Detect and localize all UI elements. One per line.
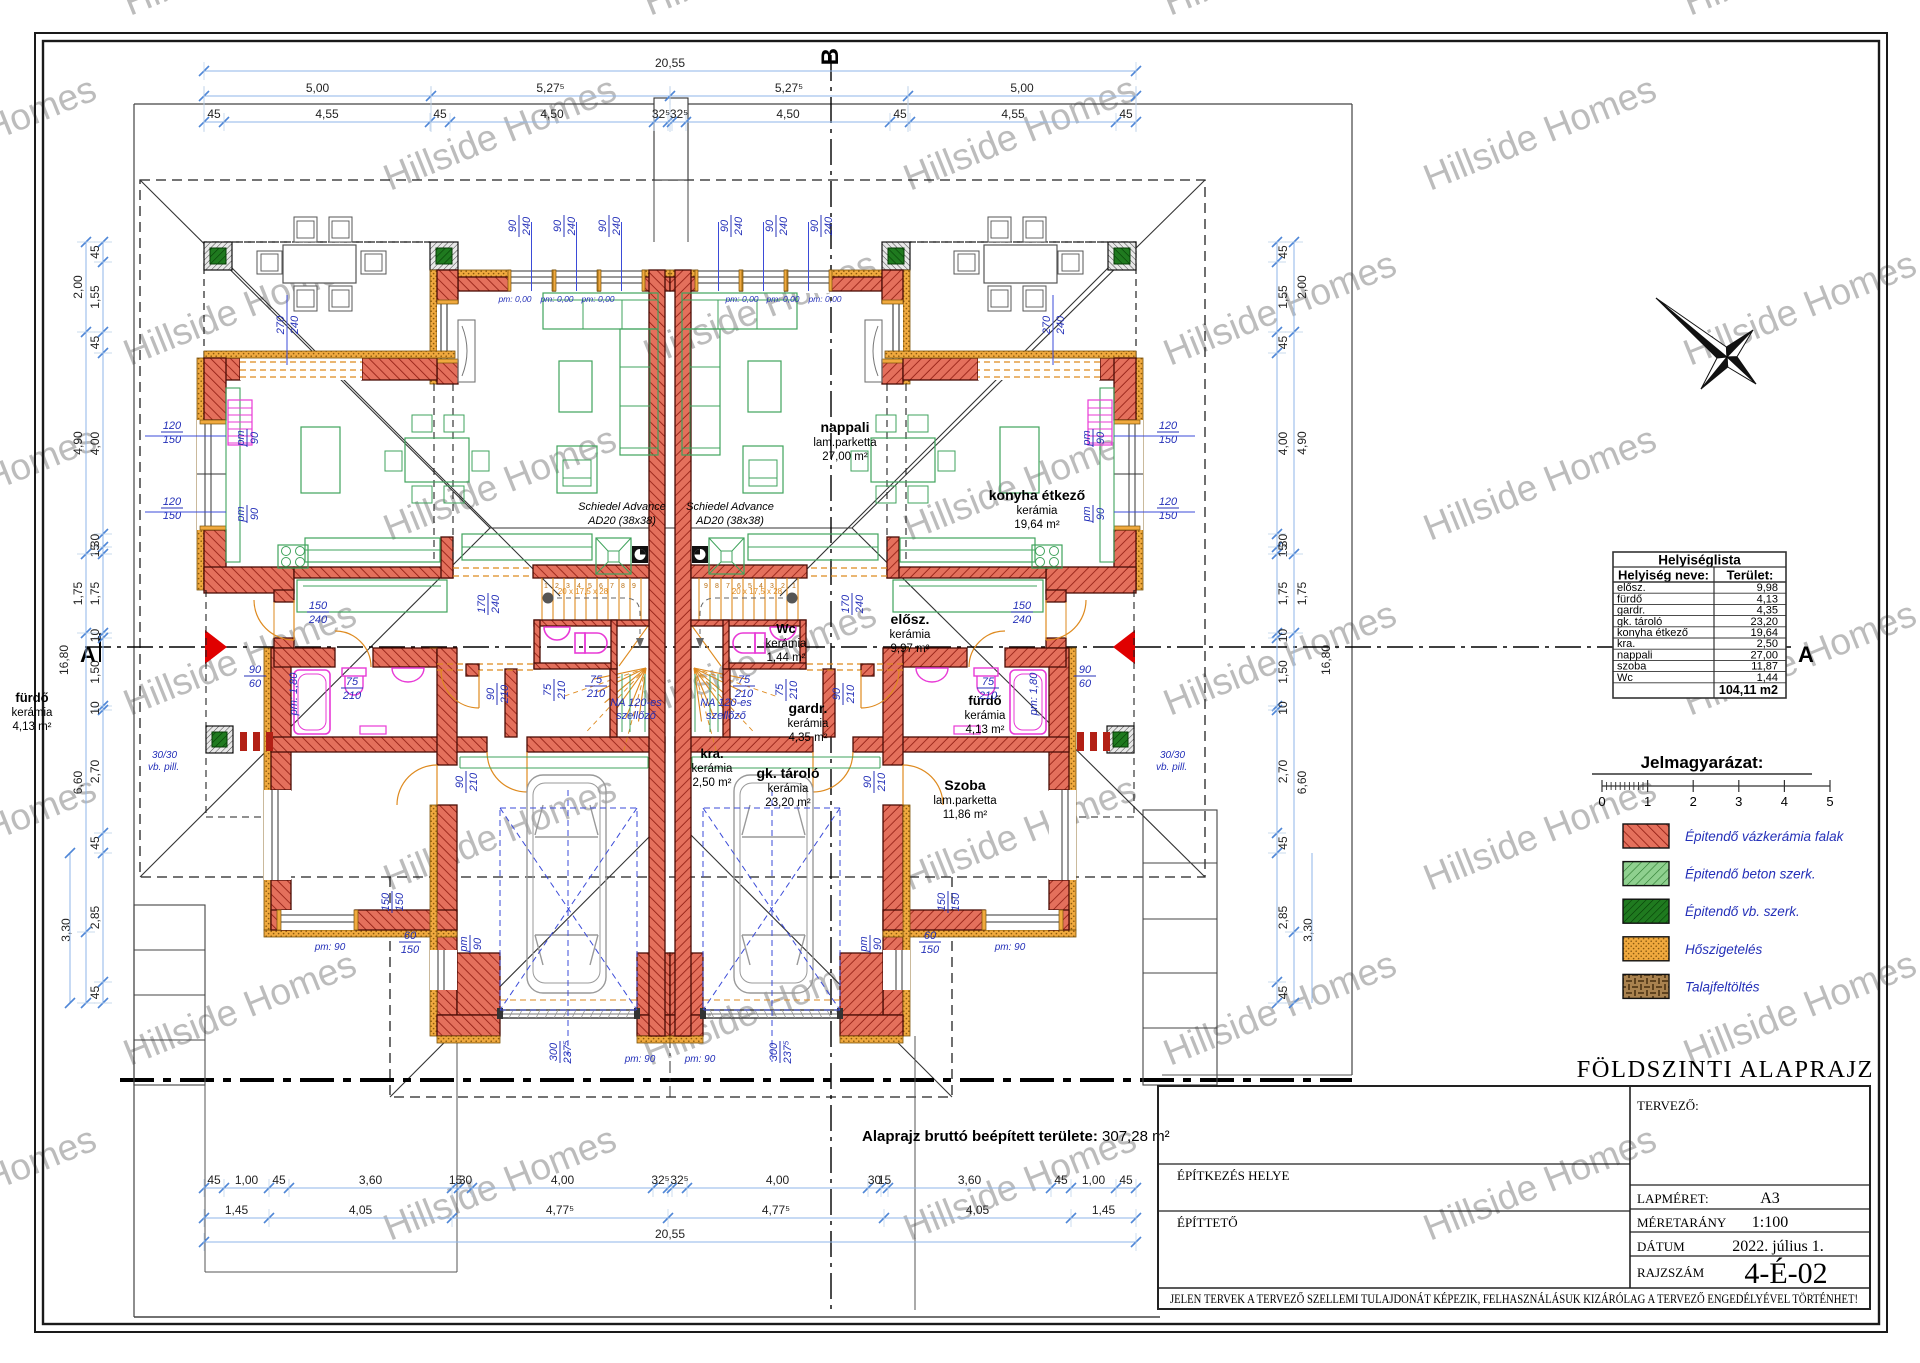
svg-text:9,98: 9,98 xyxy=(1757,582,1778,594)
svg-text:4,90: 4,90 xyxy=(71,431,85,455)
svg-text:20 x 17,5 x 28: 20 x 17,5 x 28 xyxy=(732,587,783,596)
svg-text:8: 8 xyxy=(621,583,625,590)
svg-text:237⁵: 237⁵ xyxy=(782,1040,794,1064)
svg-text:pm: 1,80: pm: 1,80 xyxy=(288,672,300,717)
svg-text:szoba: szoba xyxy=(1617,661,1647,673)
svg-text:pm: pm xyxy=(235,430,247,446)
svg-text:5,00: 5,00 xyxy=(1010,81,1034,95)
svg-text:Schiedel Advance: Schiedel Advance xyxy=(578,501,666,513)
svg-text:pm: pm xyxy=(858,936,870,952)
svg-text:1,55: 1,55 xyxy=(1276,285,1290,309)
svg-text:210: 210 xyxy=(876,772,888,792)
svg-text:5,00: 5,00 xyxy=(306,81,330,95)
svg-text:120: 120 xyxy=(1159,420,1178,432)
svg-text:75: 75 xyxy=(982,676,995,688)
svg-text:11,87: 11,87 xyxy=(1751,661,1778,673)
svg-text:RAJZSZÁM: RAJZSZÁM xyxy=(1637,1265,1705,1280)
svg-text:4,00: 4,00 xyxy=(766,1173,790,1187)
svg-text:1,75: 1,75 xyxy=(88,581,102,605)
svg-text:Helyiség neve:: Helyiség neve: xyxy=(1618,568,1709,583)
svg-text:32⁵: 32⁵ xyxy=(652,107,670,121)
svg-text:270: 270 xyxy=(1041,315,1053,335)
svg-text:240: 240 xyxy=(289,315,301,335)
svg-text:104,11 m2: 104,11 m2 xyxy=(1719,683,1778,697)
svg-text:90: 90 xyxy=(862,775,874,788)
svg-text:210: 210 xyxy=(556,680,568,700)
svg-text:1: 1 xyxy=(1644,794,1651,809)
svg-text:1,55: 1,55 xyxy=(88,285,102,309)
svg-text:210: 210 xyxy=(342,690,362,702)
svg-text:16,80: 16,80 xyxy=(1319,645,1333,675)
svg-text:170: 170 xyxy=(840,594,852,613)
svg-text:150: 150 xyxy=(1013,600,1032,612)
svg-text:vb. pill.: vb. pill. xyxy=(148,762,179,773)
svg-text:4: 4 xyxy=(1781,794,1788,809)
svg-text:1:100: 1:100 xyxy=(1752,1214,1788,1231)
svg-text:kerámia: kerámia xyxy=(768,783,810,795)
svg-text:kerámia: kerámia xyxy=(788,718,830,730)
svg-text:240: 240 xyxy=(778,216,790,236)
svg-text:DÁTUM: DÁTUM xyxy=(1637,1239,1685,1254)
svg-text:szellőző: szellőző xyxy=(706,710,747,722)
svg-text:75: 75 xyxy=(738,674,751,686)
svg-text:2,70: 2,70 xyxy=(1276,759,1290,783)
svg-text:Szoba: Szoba xyxy=(944,777,985,793)
svg-text:170: 170 xyxy=(476,594,488,613)
svg-text:45: 45 xyxy=(88,836,102,850)
svg-text:4-É-02: 4-É-02 xyxy=(1744,1257,1827,1290)
svg-text:gk. tároló: gk. tároló xyxy=(756,765,819,781)
svg-text:270: 270 xyxy=(275,315,287,335)
svg-text:1: 1 xyxy=(792,583,796,590)
svg-text:ÉPÍTTETŐ: ÉPÍTTETŐ xyxy=(1177,1215,1238,1230)
svg-text:JELEN TERVEK A TERVEZŐ SZELLEM: JELEN TERVEK A TERVEZŐ SZELLEMI TULAJDON… xyxy=(1170,1292,1858,1306)
svg-text:6,60: 6,60 xyxy=(1295,770,1309,794)
svg-text:pm: 90: pm: 90 xyxy=(624,1054,656,1065)
svg-text:150: 150 xyxy=(394,892,406,911)
svg-text:32⁵: 32⁵ xyxy=(670,1173,688,1187)
svg-text:10: 10 xyxy=(88,701,102,715)
svg-text:kerámia: kerámia xyxy=(766,638,808,650)
svg-text:pm: 0,00: pm: 0,00 xyxy=(724,294,758,304)
svg-text:fürdő: fürdő xyxy=(1617,593,1642,605)
svg-text:pm: 90: pm: 90 xyxy=(994,942,1026,953)
svg-text:AD20 (38x38): AD20 (38x38) xyxy=(695,515,764,527)
svg-text:2: 2 xyxy=(1690,794,1697,809)
svg-text:4,35: 4,35 xyxy=(1757,605,1778,617)
svg-text:1,50: 1,50 xyxy=(88,660,102,684)
svg-text:45: 45 xyxy=(1276,986,1290,1000)
svg-text:4,50: 4,50 xyxy=(776,107,800,121)
svg-text:90: 90 xyxy=(764,219,776,232)
svg-text:pm: 0,00: pm: 0,00 xyxy=(580,294,614,304)
svg-text:kerámia: kerámia xyxy=(692,763,734,775)
svg-text:vb. pill.: vb. pill. xyxy=(1156,762,1187,773)
svg-text:75: 75 xyxy=(542,683,554,696)
svg-text:45: 45 xyxy=(207,1173,221,1187)
svg-text:3,30: 3,30 xyxy=(1301,918,1315,942)
svg-text:6,60: 6,60 xyxy=(71,770,85,794)
svg-text:240: 240 xyxy=(823,216,835,236)
svg-text:120: 120 xyxy=(1159,496,1178,508)
svg-text:ÉPÍTKEZÉS HELYE: ÉPÍTKEZÉS HELYE xyxy=(1177,1168,1289,1183)
svg-text:gardr.: gardr. xyxy=(1617,605,1645,617)
svg-text:konyha étkező: konyha étkező xyxy=(1617,627,1688,639)
svg-text:210: 210 xyxy=(788,680,800,700)
svg-text:MÉRETARÁNY: MÉRETARÁNY xyxy=(1637,1215,1727,1230)
svg-text:2,85: 2,85 xyxy=(88,905,102,929)
svg-text:Terület:: Terület: xyxy=(1727,568,1774,583)
svg-text:kerámia: kerámia xyxy=(1017,505,1059,517)
svg-text:kra.: kra. xyxy=(700,746,723,761)
svg-text:A: A xyxy=(1798,642,1814,667)
svg-text:19,64 m²: 19,64 m² xyxy=(1014,519,1060,531)
svg-text:4,77⁵: 4,77⁵ xyxy=(546,1203,574,1217)
svg-text:2022. július 1.: 2022. július 1. xyxy=(1732,1238,1824,1255)
svg-text:9: 9 xyxy=(704,583,708,590)
svg-text:150: 150 xyxy=(309,600,328,612)
svg-text:45: 45 xyxy=(1276,336,1290,350)
svg-text:1,75: 1,75 xyxy=(71,581,85,605)
svg-text:B: B xyxy=(817,48,844,65)
svg-text:10: 10 xyxy=(88,629,102,643)
svg-text:90: 90 xyxy=(1079,664,1092,676)
svg-text:4,00: 4,00 xyxy=(551,1173,575,1187)
svg-text:4,05: 4,05 xyxy=(349,1203,373,1217)
svg-text:Épitendő beton szerk.: Épitendő beton szerk. xyxy=(1685,867,1816,882)
svg-text:30/30: 30/30 xyxy=(152,750,177,761)
svg-text:45: 45 xyxy=(88,986,102,1000)
svg-text:90: 90 xyxy=(1095,431,1107,444)
svg-text:45: 45 xyxy=(1276,836,1290,850)
svg-text:9: 9 xyxy=(632,583,636,590)
svg-text:237⁵: 237⁵ xyxy=(562,1040,574,1064)
svg-text:90: 90 xyxy=(249,664,262,676)
svg-text:pm: 0,00: pm: 0,00 xyxy=(539,294,573,304)
svg-text:lam.parketta: lam.parketta xyxy=(933,795,997,807)
svg-text:1,45: 1,45 xyxy=(1092,1203,1116,1217)
svg-text:30/30: 30/30 xyxy=(1160,750,1185,761)
svg-text:90: 90 xyxy=(249,431,261,444)
svg-text:5,27⁵: 5,27⁵ xyxy=(536,81,564,95)
svg-text:1,44 m²: 1,44 m² xyxy=(767,652,806,664)
svg-text:75: 75 xyxy=(590,674,603,686)
svg-text:kerámia: kerámia xyxy=(965,710,1007,722)
svg-text:45: 45 xyxy=(1119,107,1133,121)
svg-text:NA 120-es: NA 120-es xyxy=(700,697,752,709)
svg-text:45: 45 xyxy=(207,107,221,121)
svg-text:4,77⁵: 4,77⁵ xyxy=(762,1203,790,1217)
svg-text:2,00: 2,00 xyxy=(1295,275,1309,299)
svg-text:210: 210 xyxy=(586,688,606,700)
svg-text:240: 240 xyxy=(308,614,328,626)
svg-text:150: 150 xyxy=(936,892,948,911)
svg-text:120: 120 xyxy=(163,420,182,432)
svg-text:4,05: 4,05 xyxy=(966,1203,990,1217)
svg-text:elősz.: elősz. xyxy=(1617,582,1646,594)
svg-text:90: 90 xyxy=(485,687,497,700)
svg-text:2,70: 2,70 xyxy=(88,759,102,783)
svg-text:90: 90 xyxy=(597,219,609,232)
svg-text:7: 7 xyxy=(610,583,614,590)
svg-text:TERVEZŐ:: TERVEZŐ: xyxy=(1637,1098,1699,1113)
svg-text:90: 90 xyxy=(1095,507,1107,520)
svg-text:30: 30 xyxy=(459,1173,473,1187)
svg-text:240: 240 xyxy=(733,216,745,236)
svg-text:210: 210 xyxy=(845,684,857,704)
svg-text:120: 120 xyxy=(163,496,182,508)
svg-text:90: 90 xyxy=(454,775,466,788)
svg-text:0: 0 xyxy=(1598,794,1605,809)
svg-text:15: 15 xyxy=(878,1173,892,1187)
svg-text:150: 150 xyxy=(401,944,420,956)
svg-text:4,50: 4,50 xyxy=(540,107,564,121)
svg-text:Épitendő vb. szerk.: Épitendő vb. szerk. xyxy=(1685,904,1800,919)
svg-text:150: 150 xyxy=(921,944,940,956)
svg-text:90: 90 xyxy=(719,219,731,232)
svg-text:Épitendő vázkerámia falak: Épitendő vázkerámia falak xyxy=(1685,829,1845,844)
svg-text:lam.parketta: lam.parketta xyxy=(813,437,877,449)
svg-text:27,00: 27,00 xyxy=(1750,649,1778,661)
svg-text:45: 45 xyxy=(1054,1173,1068,1187)
svg-text:150: 150 xyxy=(380,892,392,911)
svg-text:210: 210 xyxy=(978,690,998,702)
svg-text:2,85: 2,85 xyxy=(1276,905,1290,929)
svg-text:75: 75 xyxy=(346,676,359,688)
svg-text:pm: pm xyxy=(458,936,470,952)
svg-text:Schiedel Advance: Schiedel Advance xyxy=(686,501,774,513)
svg-text:LAPMÉRET:: LAPMÉRET: xyxy=(1637,1191,1709,1206)
svg-text:5: 5 xyxy=(1826,794,1833,809)
svg-text:23,20: 23,20 xyxy=(1750,616,1778,628)
svg-text:23,20 m²: 23,20 m² xyxy=(765,797,811,809)
svg-text:FÖLDSZINTI ALAPRAJZ: FÖLDSZINTI ALAPRAJZ xyxy=(1577,1056,1874,1083)
svg-text:90: 90 xyxy=(831,687,843,700)
svg-text:10: 10 xyxy=(1276,629,1290,643)
svg-text:11,86 m²: 11,86 m² xyxy=(943,809,988,821)
svg-text:4,13 m²: 4,13 m² xyxy=(966,724,1005,736)
svg-text:Wc: Wc xyxy=(776,621,796,636)
svg-text:15: 15 xyxy=(1276,544,1290,558)
svg-text:1,45: 1,45 xyxy=(225,1203,249,1217)
svg-text:45: 45 xyxy=(272,1173,286,1187)
svg-text:elősz.: elősz. xyxy=(891,611,930,627)
svg-text:75: 75 xyxy=(774,683,786,696)
svg-text:Talajfeltöltés: Talajfeltöltés xyxy=(1685,979,1760,994)
svg-text:4,55: 4,55 xyxy=(1001,107,1025,121)
svg-text:4,35 m²: 4,35 m² xyxy=(789,732,828,744)
svg-text:240: 240 xyxy=(1055,315,1067,335)
svg-text:1: 1 xyxy=(544,583,548,590)
svg-text:90: 90 xyxy=(507,219,519,232)
svg-text:19,64: 19,64 xyxy=(1750,627,1778,639)
svg-text:210: 210 xyxy=(468,772,480,792)
svg-text:90: 90 xyxy=(249,507,261,520)
svg-text:45: 45 xyxy=(88,245,102,259)
svg-text:2,50 m²: 2,50 m² xyxy=(693,777,732,789)
svg-text:gardr.: gardr. xyxy=(789,700,828,716)
svg-text:kra.: kra. xyxy=(1617,638,1635,650)
svg-text:4,13 m²: 4,13 m² xyxy=(13,721,52,733)
svg-text:7: 7 xyxy=(726,583,730,590)
svg-text:Helyiséglista: Helyiséglista xyxy=(1658,553,1741,568)
svg-text:90: 90 xyxy=(872,937,884,950)
svg-text:pm: 0,00: pm: 0,00 xyxy=(765,294,799,304)
svg-text:32⁵: 32⁵ xyxy=(670,107,688,121)
svg-text:konyha étkező: konyha étkező xyxy=(989,487,1085,503)
svg-text:NA 120-es: NA 120-es xyxy=(610,697,662,709)
svg-text:3,30: 3,30 xyxy=(59,918,73,942)
svg-text:Wc: Wc xyxy=(1617,672,1633,684)
svg-text:90: 90 xyxy=(552,219,564,232)
svg-text:3,60: 3,60 xyxy=(958,1173,982,1187)
svg-text:AD20 (38x38): AD20 (38x38) xyxy=(587,515,656,527)
svg-text:60: 60 xyxy=(249,678,262,690)
svg-text:Jelmagyarázat:: Jelmagyarázat: xyxy=(1641,753,1764,772)
svg-text:27,00 m²: 27,00 m² xyxy=(822,451,868,463)
svg-text:pm: pm xyxy=(235,506,247,522)
svg-text:45: 45 xyxy=(1119,1173,1133,1187)
svg-text:60: 60 xyxy=(404,930,417,942)
svg-text:3,60: 3,60 xyxy=(359,1173,383,1187)
svg-text:A3: A3 xyxy=(1760,1190,1780,1207)
svg-text:240: 240 xyxy=(1012,614,1032,626)
svg-text:szellőző: szellőző xyxy=(616,710,657,722)
svg-text:1,00: 1,00 xyxy=(235,1173,259,1187)
svg-text:pm: 0,00: pm: 0,00 xyxy=(807,294,841,304)
svg-text:45: 45 xyxy=(893,107,907,121)
svg-text:kerámia: kerámia xyxy=(12,707,54,719)
svg-text:20,55: 20,55 xyxy=(655,1227,685,1241)
svg-text:90: 90 xyxy=(809,219,821,232)
svg-text:1,75: 1,75 xyxy=(1276,581,1290,605)
svg-text:300: 300 xyxy=(768,1042,780,1061)
svg-text:pm: 1,80: pm: 1,80 xyxy=(1028,672,1040,717)
svg-text:16,80: 16,80 xyxy=(57,645,71,675)
svg-text:2,00: 2,00 xyxy=(71,275,85,299)
svg-text:45: 45 xyxy=(1276,245,1290,259)
svg-text:4,90: 4,90 xyxy=(1295,431,1309,455)
svg-text:240: 240 xyxy=(490,594,502,614)
svg-text:pm: pm xyxy=(1081,430,1093,446)
svg-text:3: 3 xyxy=(1735,794,1742,809)
svg-text:8: 8 xyxy=(715,583,719,590)
svg-text:kerámia: kerámia xyxy=(890,629,932,641)
svg-text:240: 240 xyxy=(854,594,866,614)
svg-text:90: 90 xyxy=(472,937,484,950)
svg-text:60: 60 xyxy=(924,930,937,942)
svg-text:pm: pm xyxy=(1081,506,1093,522)
svg-text:32⁵: 32⁵ xyxy=(651,1173,669,1187)
svg-text:Hőszigetelés: Hőszigetelés xyxy=(1685,942,1763,957)
svg-text:9,97 m²: 9,97 m² xyxy=(891,643,930,655)
svg-text:210: 210 xyxy=(499,684,511,704)
svg-text:1,50: 1,50 xyxy=(1276,660,1290,684)
svg-text:Alaprajz bruttó beépített terü: Alaprajz bruttó beépített területe: 307,… xyxy=(862,1128,1170,1145)
svg-text:nappali: nappali xyxy=(820,419,869,435)
svg-text:pm: 0,00: pm: 0,00 xyxy=(497,294,531,304)
svg-text:4,00: 4,00 xyxy=(88,431,102,455)
svg-text:pm: 90: pm: 90 xyxy=(684,1054,716,1065)
svg-text:300: 300 xyxy=(548,1042,560,1061)
svg-text:60: 60 xyxy=(1079,678,1092,690)
svg-text:fürdő: fürdő xyxy=(15,690,48,705)
svg-text:20,55: 20,55 xyxy=(655,56,685,70)
svg-text:45: 45 xyxy=(433,107,447,121)
svg-text:4,00: 4,00 xyxy=(1276,431,1290,455)
svg-text:1,44: 1,44 xyxy=(1757,672,1778,684)
svg-text:4,13: 4,13 xyxy=(1757,593,1778,605)
svg-text:20 x 17,5 x 28: 20 x 17,5 x 28 xyxy=(558,587,609,596)
svg-text:pm: 90: pm: 90 xyxy=(314,942,346,953)
svg-text:1,75: 1,75 xyxy=(1295,581,1309,605)
svg-text:5,27⁵: 5,27⁵ xyxy=(775,81,803,95)
svg-text:1,00: 1,00 xyxy=(1082,1173,1106,1187)
svg-text:4,55: 4,55 xyxy=(315,107,339,121)
svg-text:10: 10 xyxy=(1276,701,1290,715)
svg-text:gk. tároló: gk. tároló xyxy=(1617,616,1662,628)
svg-text:2,50: 2,50 xyxy=(1757,638,1778,650)
svg-text:45: 45 xyxy=(88,336,102,350)
svg-text:150: 150 xyxy=(950,892,962,911)
svg-text:nappali: nappali xyxy=(1617,649,1652,661)
